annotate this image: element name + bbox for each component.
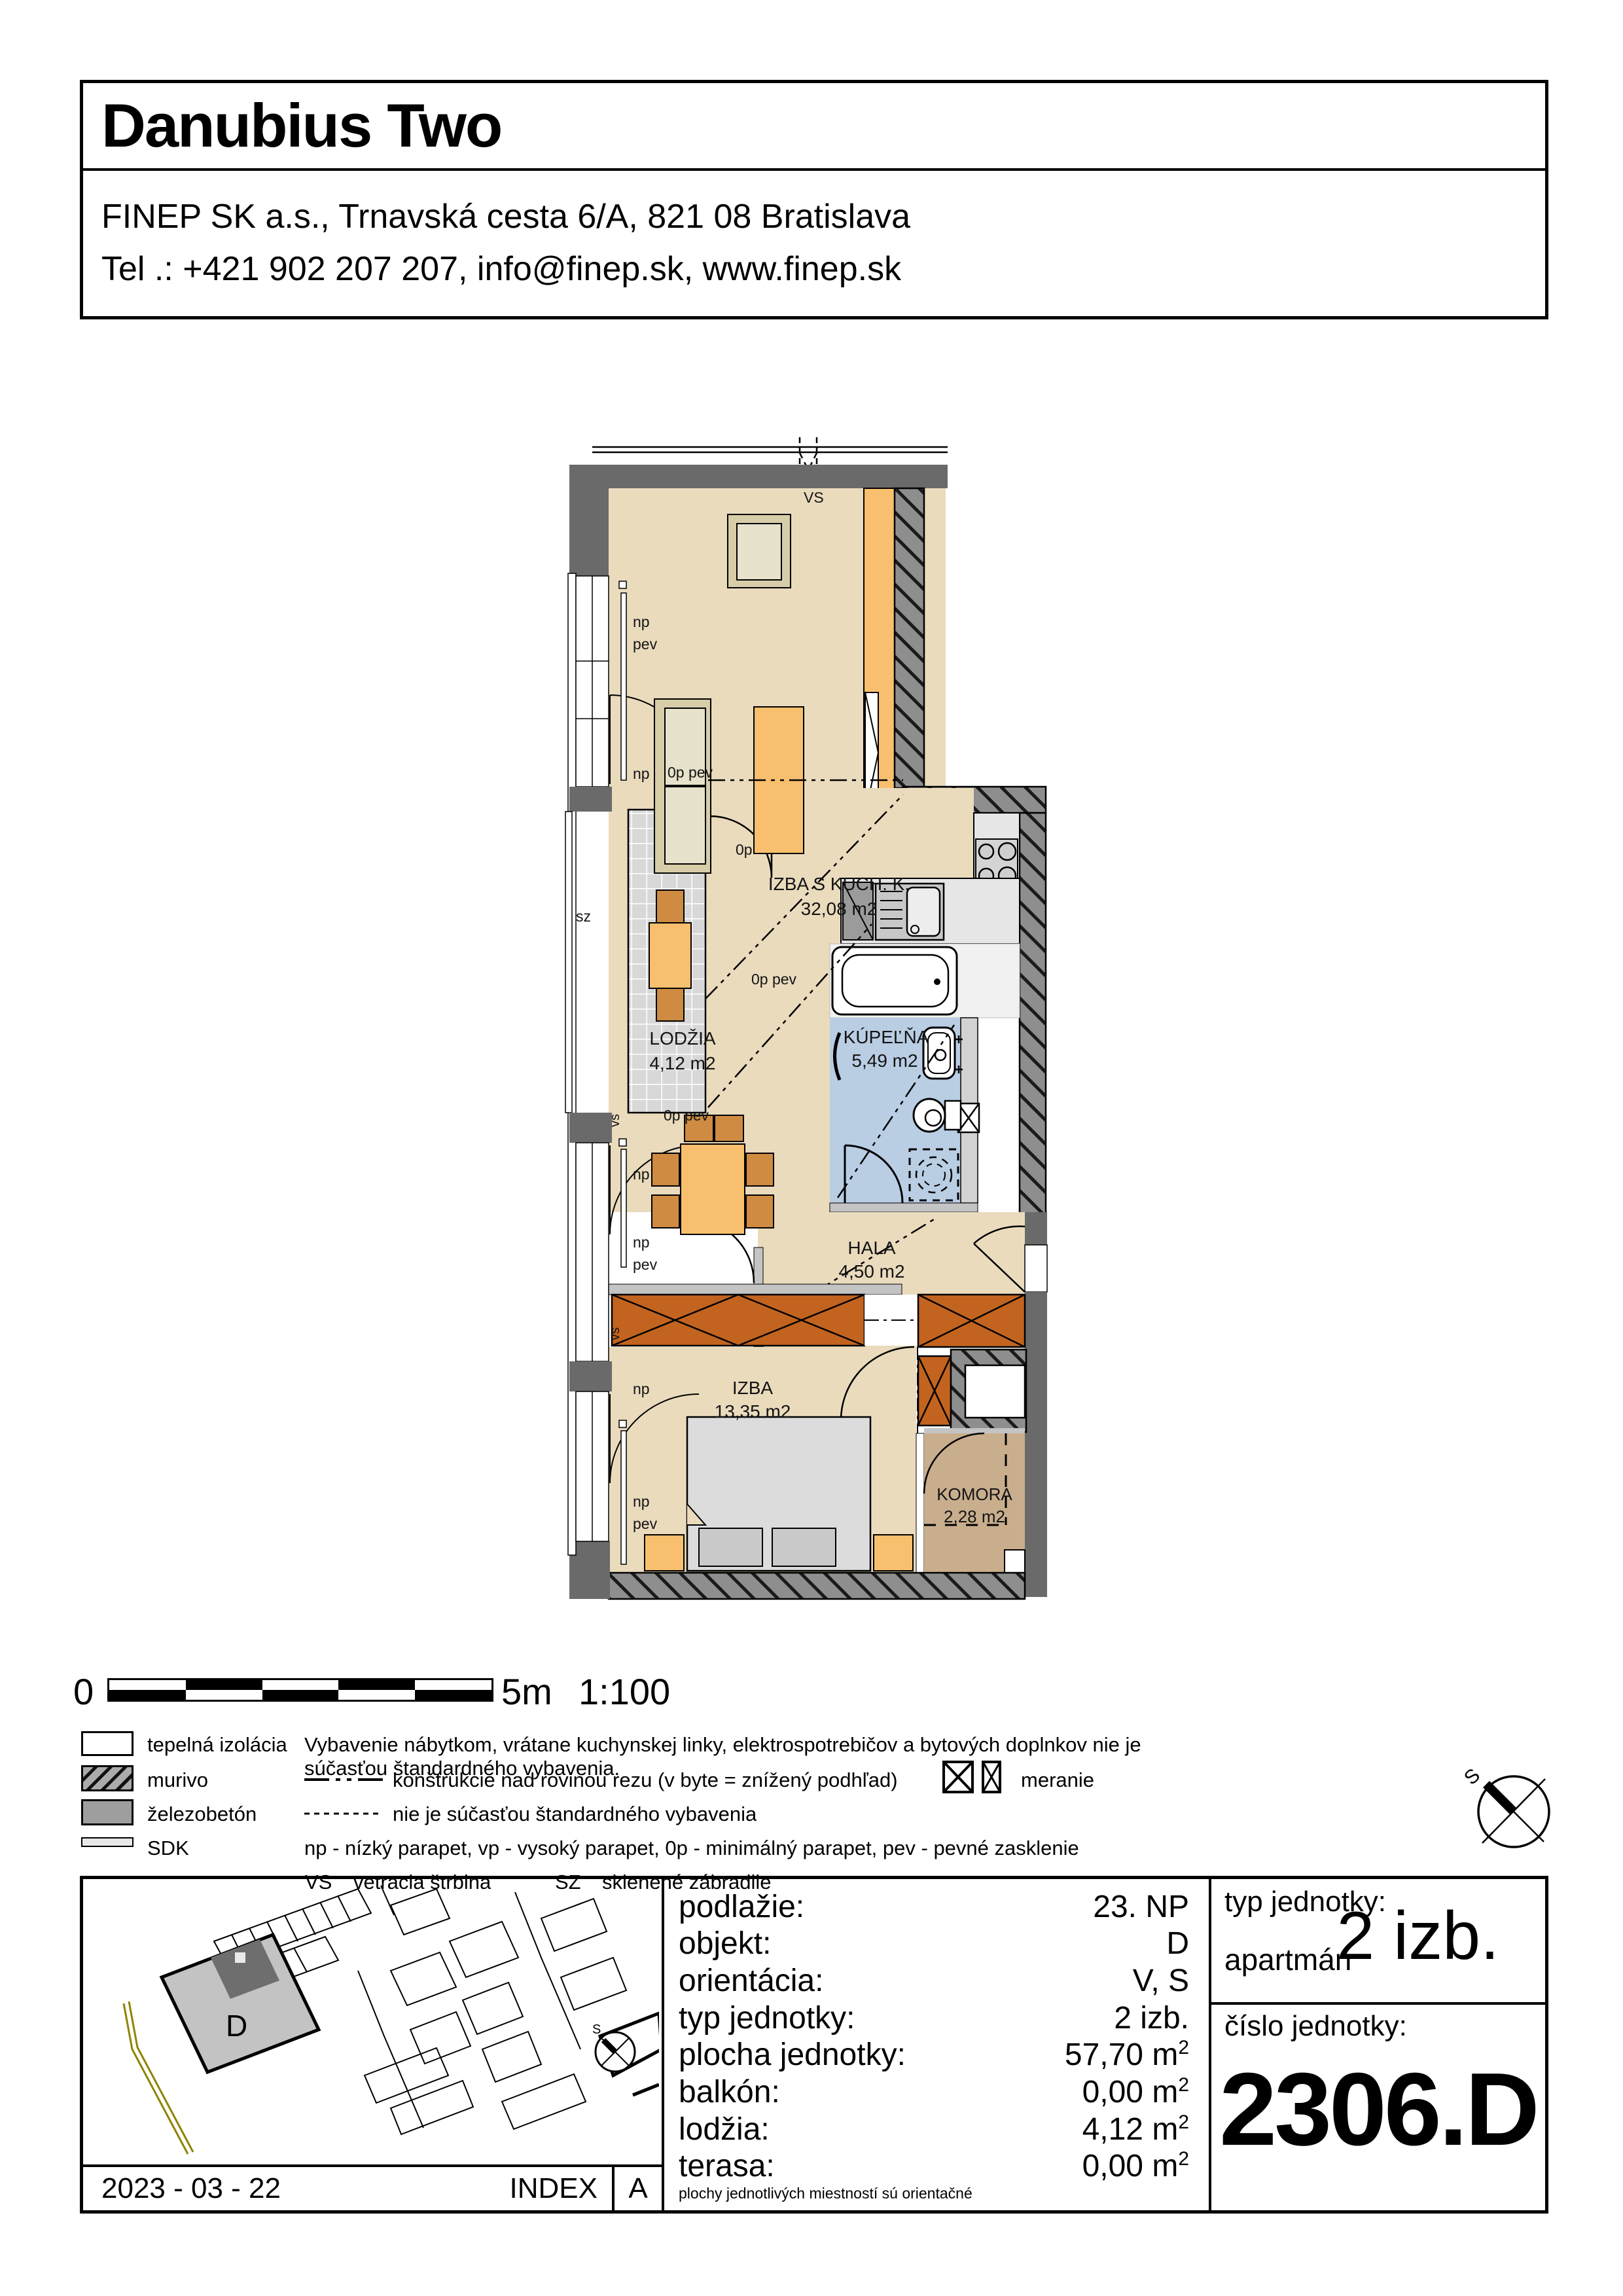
legend-label-insulation: tepelná izolácia [147, 1733, 287, 1757]
header-box: Danubius Two FINEP SK a.s., Trnavská ces… [80, 80, 1548, 319]
scalebar-zero: 0 [73, 1670, 94, 1713]
legend-label-concrete: železobetón [147, 1803, 257, 1826]
vs-annotation: VS [804, 489, 824, 506]
room-area-living: 32,08 m2 [801, 899, 878, 919]
date: 2023 - 03 - 22 [83, 2172, 486, 2205]
vs-annotation: vs [608, 1327, 622, 1340]
map-building-label: D [226, 2009, 247, 2043]
room-area-hala: 4,50 m2 [838, 1261, 904, 1282]
meranie-icon [942, 1761, 1003, 1793]
unit-id-pane: typ jednotky: apartmán 2 izb. číslo jedn… [1211, 1879, 1545, 2210]
unit-data-pane: podlažie: 23. NP objekt: D orientácia: V… [664, 1879, 1211, 2210]
site-map: D S [83, 1879, 659, 2161]
room-label-loggia: LODŽIA [649, 1028, 715, 1049]
info-row: balkón: 0,00 m2 [679, 2073, 1189, 2111]
np-annotation: np [633, 1166, 650, 1183]
legend-label-masonry: murivo [147, 1768, 208, 1792]
np-annotation: np [633, 1380, 650, 1397]
room-label-komora: KOMORA [936, 1484, 1012, 1504]
site-map-pane: D S 2023 - 03 - 22 INDEX A [83, 1879, 664, 2210]
floor-plan: IZBA S KUCH. K. 32,08 m2 LODŽIA 4,12 m2 … [556, 432, 1067, 1610]
room-area-komora: 2,28 m2 [944, 1507, 1005, 1526]
unit-type-value: 2 izb. [1336, 1897, 1499, 1975]
room-label-hala: HALA [847, 1238, 895, 1258]
op-pev-annotation: 0p pev [664, 1107, 709, 1124]
title-block: D S 2023 - 03 - 22 INDEX A podl [80, 1876, 1548, 2214]
sz-annotation: sz [576, 908, 591, 925]
unit-number: 2306.D [1211, 2051, 1545, 2169]
info-row: plocha jednotky: 57,70 m2 [679, 2037, 1189, 2074]
dashed-line-symbol [304, 1810, 383, 1817]
room-label-izba: IZBA [732, 1378, 774, 1398]
pev-annotation: pev [633, 1515, 658, 1532]
dashdot-line-symbol [304, 1776, 383, 1783]
svg-text:S: S [592, 2022, 601, 2037]
np-annotation: np [633, 765, 650, 782]
room-area-izba: 13,35 m2 [715, 1401, 791, 1422]
op-annotation: 0p [736, 841, 753, 858]
info-row: podlažie: 23. NP [679, 1888, 1189, 1926]
legend-swatch-masonry [81, 1765, 134, 1791]
np-annotation: np [633, 613, 650, 630]
legend-swatch-insulation [81, 1731, 134, 1756]
index-label: INDEX [486, 2172, 612, 2205]
legend-label-sdk: SDK [147, 1837, 189, 1860]
pev-annotation: pev [633, 1256, 658, 1273]
info-row: orientácia: V, S [679, 1962, 1189, 2000]
vs-annotation: vs [608, 1114, 622, 1127]
scalebar-max: 5m [501, 1670, 552, 1713]
legend-swatch-concrete [81, 1799, 134, 1825]
unit-number-label: číslo jednotky: [1224, 2010, 1407, 2043]
unit-type-name: apartmán [1224, 1942, 1351, 1977]
room-label-bath: KÚPEĽŇA [844, 1027, 929, 1047]
info-row: terasa: 0,00 m2 [679, 2147, 1189, 2185]
company-address: FINEP SK a.s., Trnavská cesta 6/A, 821 0… [101, 190, 1545, 243]
index-value: A [612, 2167, 662, 2210]
legend-parapet-note: np - nízký parapet, vp - vysoký parapet,… [304, 1837, 1079, 1860]
legend-meranie: meranie [1021, 1768, 1094, 1792]
info-row: lodžia: 4,12 m2 [679, 2111, 1189, 2148]
legend-not-standard: nie je súčasťou štandardného vybavenia [393, 1803, 757, 1826]
np-annotation: np [633, 1234, 650, 1251]
room-area-loggia: 4,12 m2 [649, 1053, 715, 1073]
legend-swatch-sdk [81, 1837, 134, 1847]
info-row: objekt: D [679, 1926, 1189, 1963]
legend-above-cut: konštrukcie nad rovinou rezu (v byte = z… [393, 1768, 898, 1792]
north-arrow-icon: S [1463, 1754, 1561, 1859]
op-pev-annotation: 0p pev [751, 971, 797, 988]
areas-note: plochy jednotlivých miestností sú orient… [679, 2185, 1189, 2205]
compass-s-label: S [1463, 1765, 1484, 1789]
scalebar [107, 1678, 493, 1702]
np-annotation: np [633, 1493, 650, 1510]
pev-annotation: pev [633, 636, 658, 653]
floorplan-sheet: Danubius Two FINEP SK a.s., Trnavská ces… [0, 0, 1623, 2296]
room-label-living: IZBA S KUCH. K. [768, 874, 910, 894]
info-row: typ jednotky: 2 izb. [679, 2000, 1189, 2037]
company-contact: Tel .: +421 902 207 207, info@finep.sk, … [101, 243, 1545, 295]
scalebar-ratio: 1:100 [579, 1670, 670, 1713]
page-title: Danubius Two [101, 90, 501, 161]
room-area-bath: 5,49 m2 [851, 1050, 918, 1071]
op-pev-annotation: 0p pev [668, 764, 713, 781]
